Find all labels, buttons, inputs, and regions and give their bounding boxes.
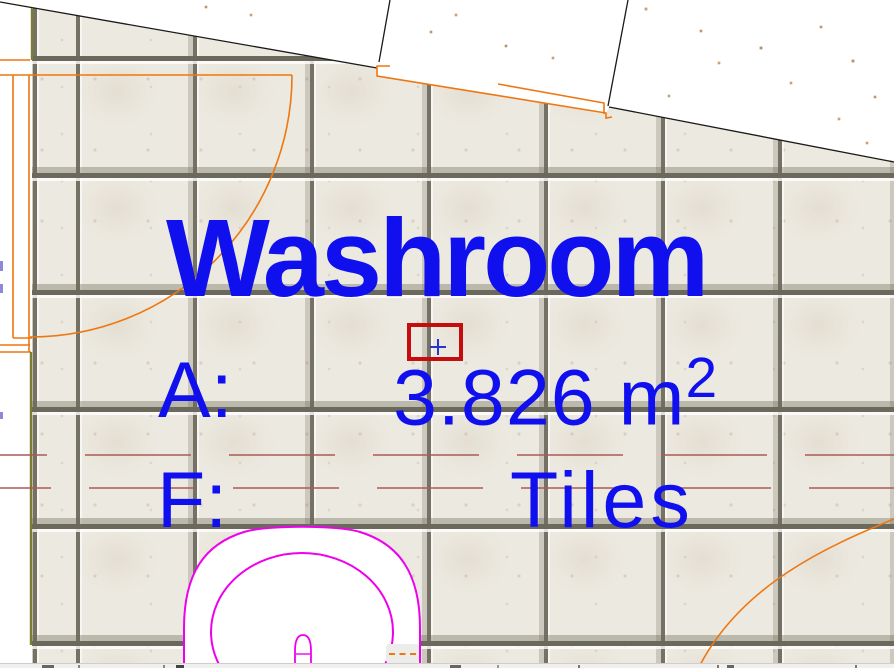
- crosshair-cursor-icon: [437, 339, 439, 355]
- outside-region: [0, 0, 894, 161]
- area-value-label: 3.826 m2: [393, 350, 717, 436]
- clipped-text-fragment: [0, 412, 3, 419]
- statusbar-sliver: [0, 663, 894, 668]
- clipped-text-fragment: [0, 284, 3, 293]
- door-swing-arc-bottom-right[interactable]: [700, 519, 894, 665]
- drawing-canvas[interactable]: Washroom A: 3.826 m2 F: Tiles: [0, 0, 894, 668]
- floor-key-label: F:: [157, 460, 227, 539]
- sink-fixture[interactable]: [184, 527, 420, 668]
- floor-value-label: Tiles: [510, 460, 694, 539]
- area-key-label: A:: [158, 350, 233, 429]
- area-exponent: 2: [685, 346, 717, 410]
- texture-speckles: [0, 0, 2, 2]
- selection-rectangle[interactable]: [407, 323, 463, 361]
- snap-dashed-line-icon: [389, 653, 416, 655]
- room-name-label[interactable]: Washroom: [166, 204, 706, 314]
- area-number: 3.826 m: [393, 352, 685, 441]
- clipped-text-fragment: [0, 261, 3, 271]
